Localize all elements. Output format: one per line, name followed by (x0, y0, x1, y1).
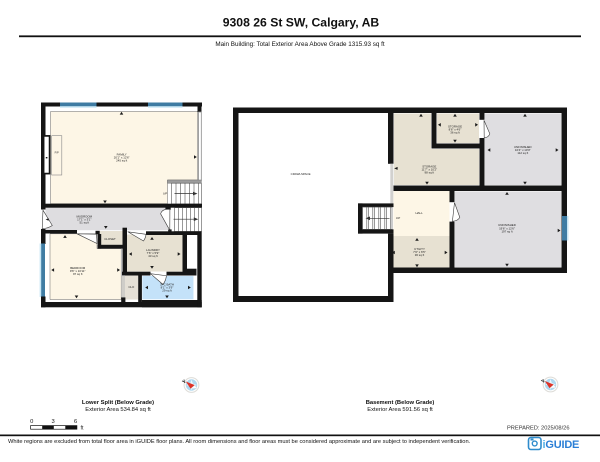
svg-text:HALL: HALL (415, 211, 423, 215)
svg-text:Basement (Below Grade): Basement (Below Grade) (366, 400, 435, 406)
svg-text:PREPARED: 2025/08/26: PREPARED: 2025/08/26 (507, 426, 570, 432)
svg-text:White regions are excluded fro: White regions are excluded from total fl… (8, 439, 471, 445)
svg-text:36 sq ft: 36 sq ft (450, 131, 460, 135)
svg-text:UP: UP (163, 192, 167, 196)
svg-text:36 sq ft: 36 sq ft (415, 253, 425, 257)
svg-text:Main Building: Total Exterior: Main Building: Total Exterior Area Above… (215, 41, 385, 48)
svg-text:97 sq ft: 97 sq ft (73, 272, 83, 276)
svg-text:UP: UP (396, 216, 400, 220)
svg-text:Lower Split (Below Grade): Lower Split (Below Grade) (82, 400, 154, 406)
svg-text:112 sq ft: 112 sq ft (517, 151, 528, 155)
svg-text:iGUIDE: iGUIDE (543, 439, 580, 451)
svg-text:CLOSET: CLOSET (104, 237, 116, 241)
svg-text:197 sq ft: 197 sq ft (501, 229, 512, 233)
svg-text:CLO: CLO (128, 285, 135, 289)
svg-text:Exterior Area 534.84 sq ft: Exterior Area 534.84 sq ft (85, 407, 151, 413)
svg-text:F/P: F/P (55, 151, 59, 155)
svg-text:6: 6 (74, 419, 77, 425)
svg-text:98 sq ft: 98 sq ft (425, 171, 435, 175)
svg-text:CRAWLSPACE: CRAWLSPACE (291, 172, 311, 176)
svg-text:51 sq ft: 51 sq ft (80, 221, 90, 225)
svg-text:9308 26 St SW, Calgary, AB: 9308 26 St SW, Calgary, AB (223, 15, 380, 29)
svg-text:245 sq ft: 245 sq ft (116, 159, 127, 163)
svg-text:29 sq ft: 29 sq ft (162, 289, 172, 293)
svg-text:Exterior Area 591.56 sq ft: Exterior Area 591.56 sq ft (367, 407, 433, 413)
svg-text:0: 0 (30, 419, 33, 425)
svg-text:43 sq ft: 43 sq ft (148, 254, 158, 258)
svg-text:3: 3 (51, 419, 54, 425)
